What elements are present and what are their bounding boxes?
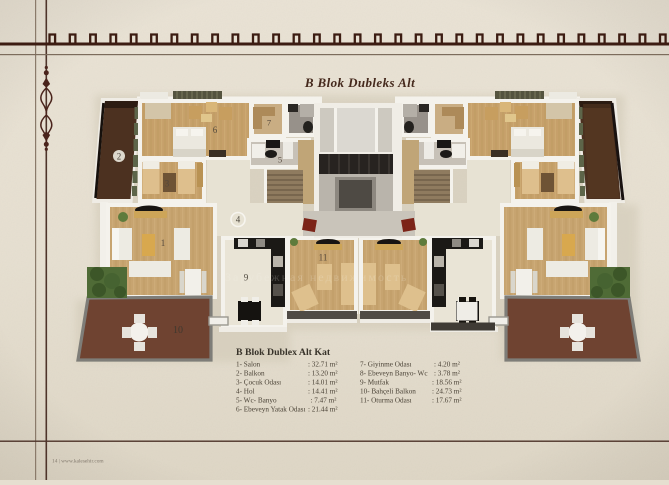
svg-text:2: 2 bbox=[117, 152, 122, 162]
svg-text:3- Çocuk Odası: 3- Çocuk Odası bbox=[236, 379, 281, 387]
svg-text:1: 1 bbox=[161, 238, 166, 248]
svg-text:14 | www.kalesehir.com: 14 | www.kalesehir.com bbox=[52, 459, 104, 465]
svg-text:B Blok Dublex Alt Kat: B Blok Dublex Alt Kat bbox=[236, 347, 331, 358]
svg-text:3: 3 bbox=[165, 179, 170, 189]
svg-text:: 24.73 m²: : 24.73 m² bbox=[432, 388, 462, 396]
svg-text:: 7.47 m²: : 7.47 m² bbox=[311, 397, 337, 405]
svg-text:: 13.20 m²: : 13.20 m² bbox=[308, 370, 338, 378]
svg-text:6- Ebeveyn Yatak Odası: 6- Ebeveyn Yatak Odası bbox=[236, 406, 305, 414]
svg-text:5: 5 bbox=[278, 155, 282, 165]
svg-text:7- Giyinme Odası: 7- Giyinme Odası bbox=[360, 361, 412, 369]
svg-text:: 18.56 m²: : 18.56 m² bbox=[432, 379, 462, 387]
svg-text:: 32.71 m²: : 32.71 m² bbox=[308, 361, 338, 369]
svg-text:5- Wc- Banyo: 5- Wc- Banyo bbox=[236, 397, 277, 405]
svg-text:11: 11 bbox=[319, 253, 328, 263]
svg-text:: 17.67 m²: : 17.67 m² bbox=[432, 397, 462, 405]
svg-text:4: 4 bbox=[236, 215, 241, 225]
svg-text:6: 6 bbox=[213, 125, 218, 135]
svg-text:: 4.20 m²: : 4.20 m² bbox=[434, 361, 460, 369]
svg-text:9- Mutfak: 9- Mutfak bbox=[360, 379, 389, 387]
svg-text:10- Bahçeli Balkon: 10- Bahçeli Balkon bbox=[360, 388, 416, 396]
svg-text:8- Ebeveyn Banyo- Wc: 8- Ebeveyn Banyo- Wc bbox=[360, 370, 428, 378]
svg-text:: 21.44 m²: : 21.44 m² bbox=[308, 406, 338, 414]
svg-text:: 14.01 m²: : 14.01 m² bbox=[308, 379, 338, 387]
svg-text:2- Balkon: 2- Balkon bbox=[236, 370, 265, 378]
svg-text:10: 10 bbox=[173, 325, 183, 336]
svg-text:B Blok Dubleks Alt: B Blok Dubleks Alt bbox=[304, 75, 415, 90]
svg-text:Зарубежная недвижимость: Зарубежная недвижимость bbox=[225, 270, 408, 284]
svg-text:11- Oturma Odası: 11- Oturma Odası bbox=[360, 397, 412, 405]
svg-text:7: 7 bbox=[267, 118, 271, 128]
svg-text:4- Hol: 4- Hol bbox=[236, 388, 255, 396]
svg-text:1- Salon: 1- Salon bbox=[236, 361, 261, 369]
svg-text:: 3.78 m²: : 3.78 m² bbox=[434, 370, 460, 378]
svg-text:: 14.41 m²: : 14.41 m² bbox=[308, 388, 338, 396]
